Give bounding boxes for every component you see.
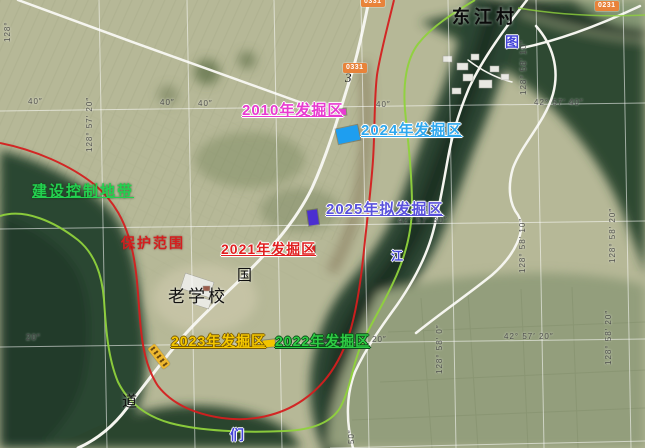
satellite-imagery — [0, 0, 645, 448]
satellite-map-view[interactable]: 40″40″40″40″42° 57′ 40″42° 57′ 30″20″20″… — [0, 0, 645, 448]
